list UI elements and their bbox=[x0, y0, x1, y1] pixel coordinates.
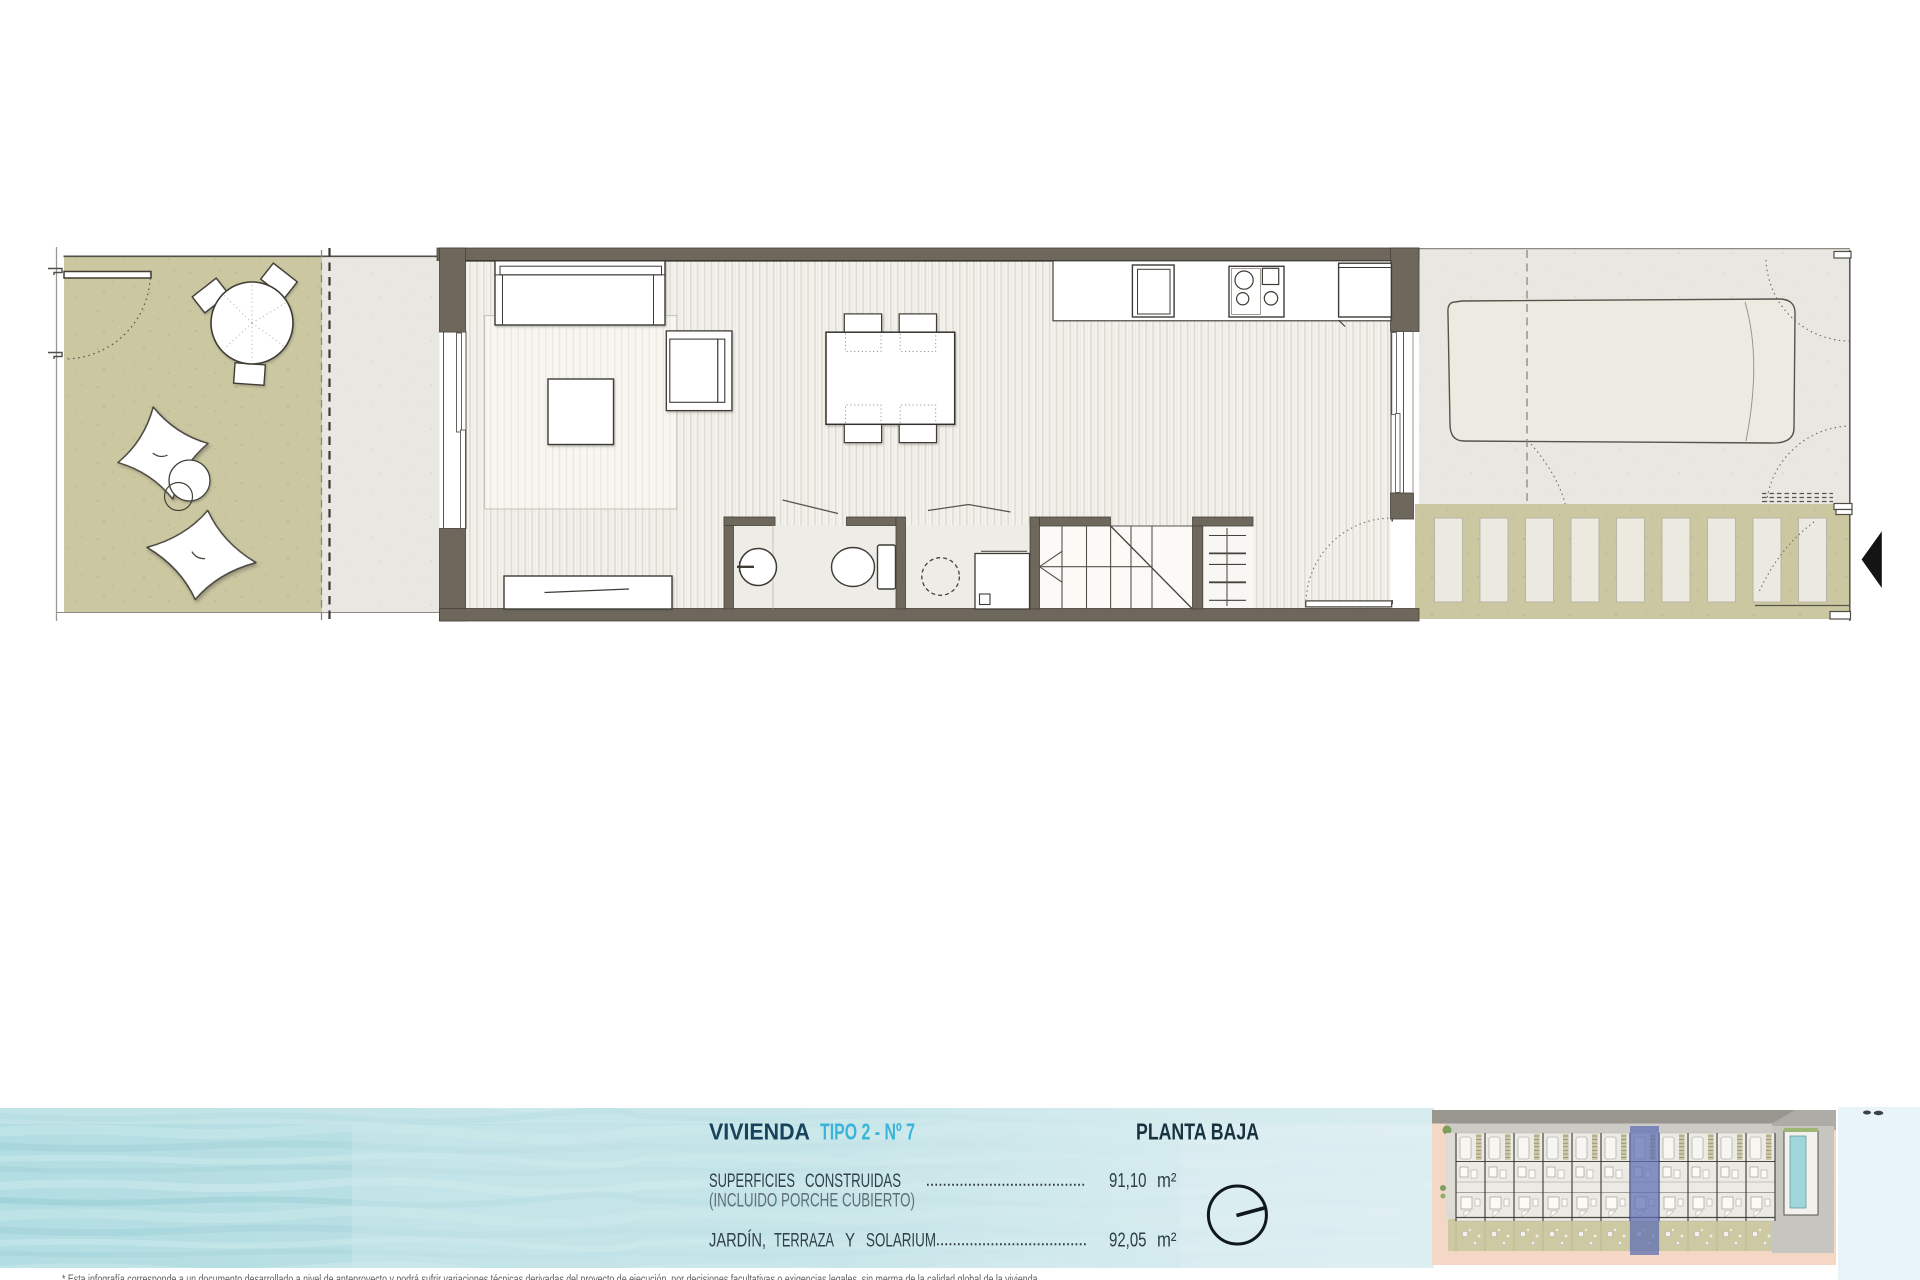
svg-text:m²: m² bbox=[1157, 1229, 1177, 1252]
svg-text:(INCLUIDO PORCHE CUBIERTO): (INCLUIDO PORCHE CUBIERTO) bbox=[709, 1191, 915, 1212]
svg-text:* Esta infografía corresponde: * Esta infografía corresponde a un docum… bbox=[62, 1274, 1040, 1280]
svg-text:JARDÍN,: JARDÍN, bbox=[709, 1229, 766, 1252]
svg-text:SOLARIUM: SOLARIUM bbox=[866, 1230, 936, 1252]
svg-text:CONSTRUIDAS: CONSTRUIDAS bbox=[805, 1170, 901, 1192]
svg-text:PLANTA BAJA: PLANTA BAJA bbox=[1136, 1119, 1259, 1145]
svg-text:Y: Y bbox=[845, 1230, 855, 1252]
svg-text:TERRAZA: TERRAZA bbox=[774, 1230, 834, 1252]
svg-text:91,10: 91,10 bbox=[1109, 1169, 1147, 1192]
svg-text:92,05: 92,05 bbox=[1109, 1229, 1147, 1252]
svg-text:VIVIENDA: VIVIENDA bbox=[709, 1119, 810, 1145]
svg-text:m²: m² bbox=[1157, 1169, 1177, 1192]
svg-text:SUPERFICIES: SUPERFICIES bbox=[709, 1170, 795, 1192]
svg-text:TIPO 2 - Nº 7: TIPO 2 - Nº 7 bbox=[820, 1119, 915, 1145]
